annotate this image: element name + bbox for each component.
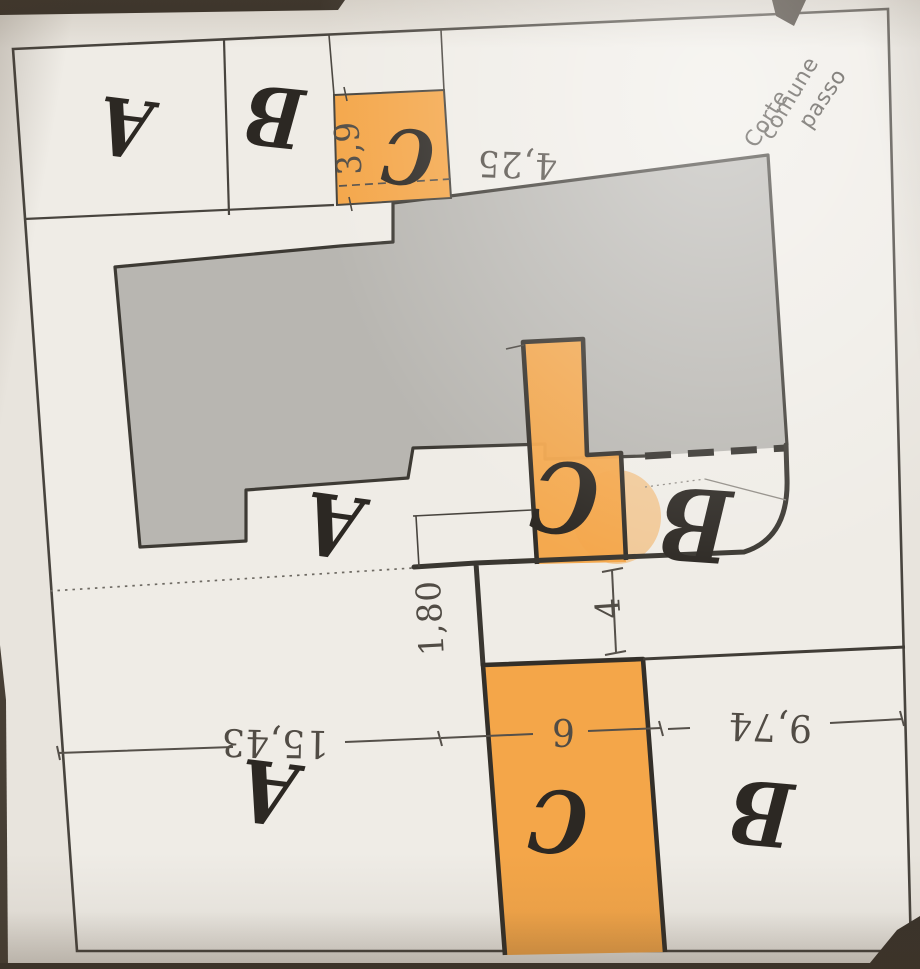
parcel-letter-c-middle: C [526,436,604,557]
dim-15-43: 15,43 [221,720,330,766]
dim-1-80: 1,80 [408,579,452,657]
parcel-letter-b-top: B [240,65,310,167]
dim-4-25: 4,25 [476,142,557,187]
parcel-letter-c-bottom: C [525,768,590,873]
parcel-letter-b-middle: B [655,463,738,585]
scanned-plan-photo: Cortecomunepasso ABCCBAACB 3,94,251,8041… [0,0,920,969]
dim-4: 4 [587,596,628,620]
parcel-letter-c-top: C [378,109,437,203]
photo-edge-bottom [0,963,920,969]
dim-3-9: 3,9 [326,120,370,177]
dim-6: 6 [551,710,576,754]
dim-9-74: 9,74 [727,704,813,751]
parcel-letter-b-bottom: B [725,758,799,867]
plan-drawing: Cortecomunepasso ABCCBAACB 3,94,251,8041… [0,0,920,969]
